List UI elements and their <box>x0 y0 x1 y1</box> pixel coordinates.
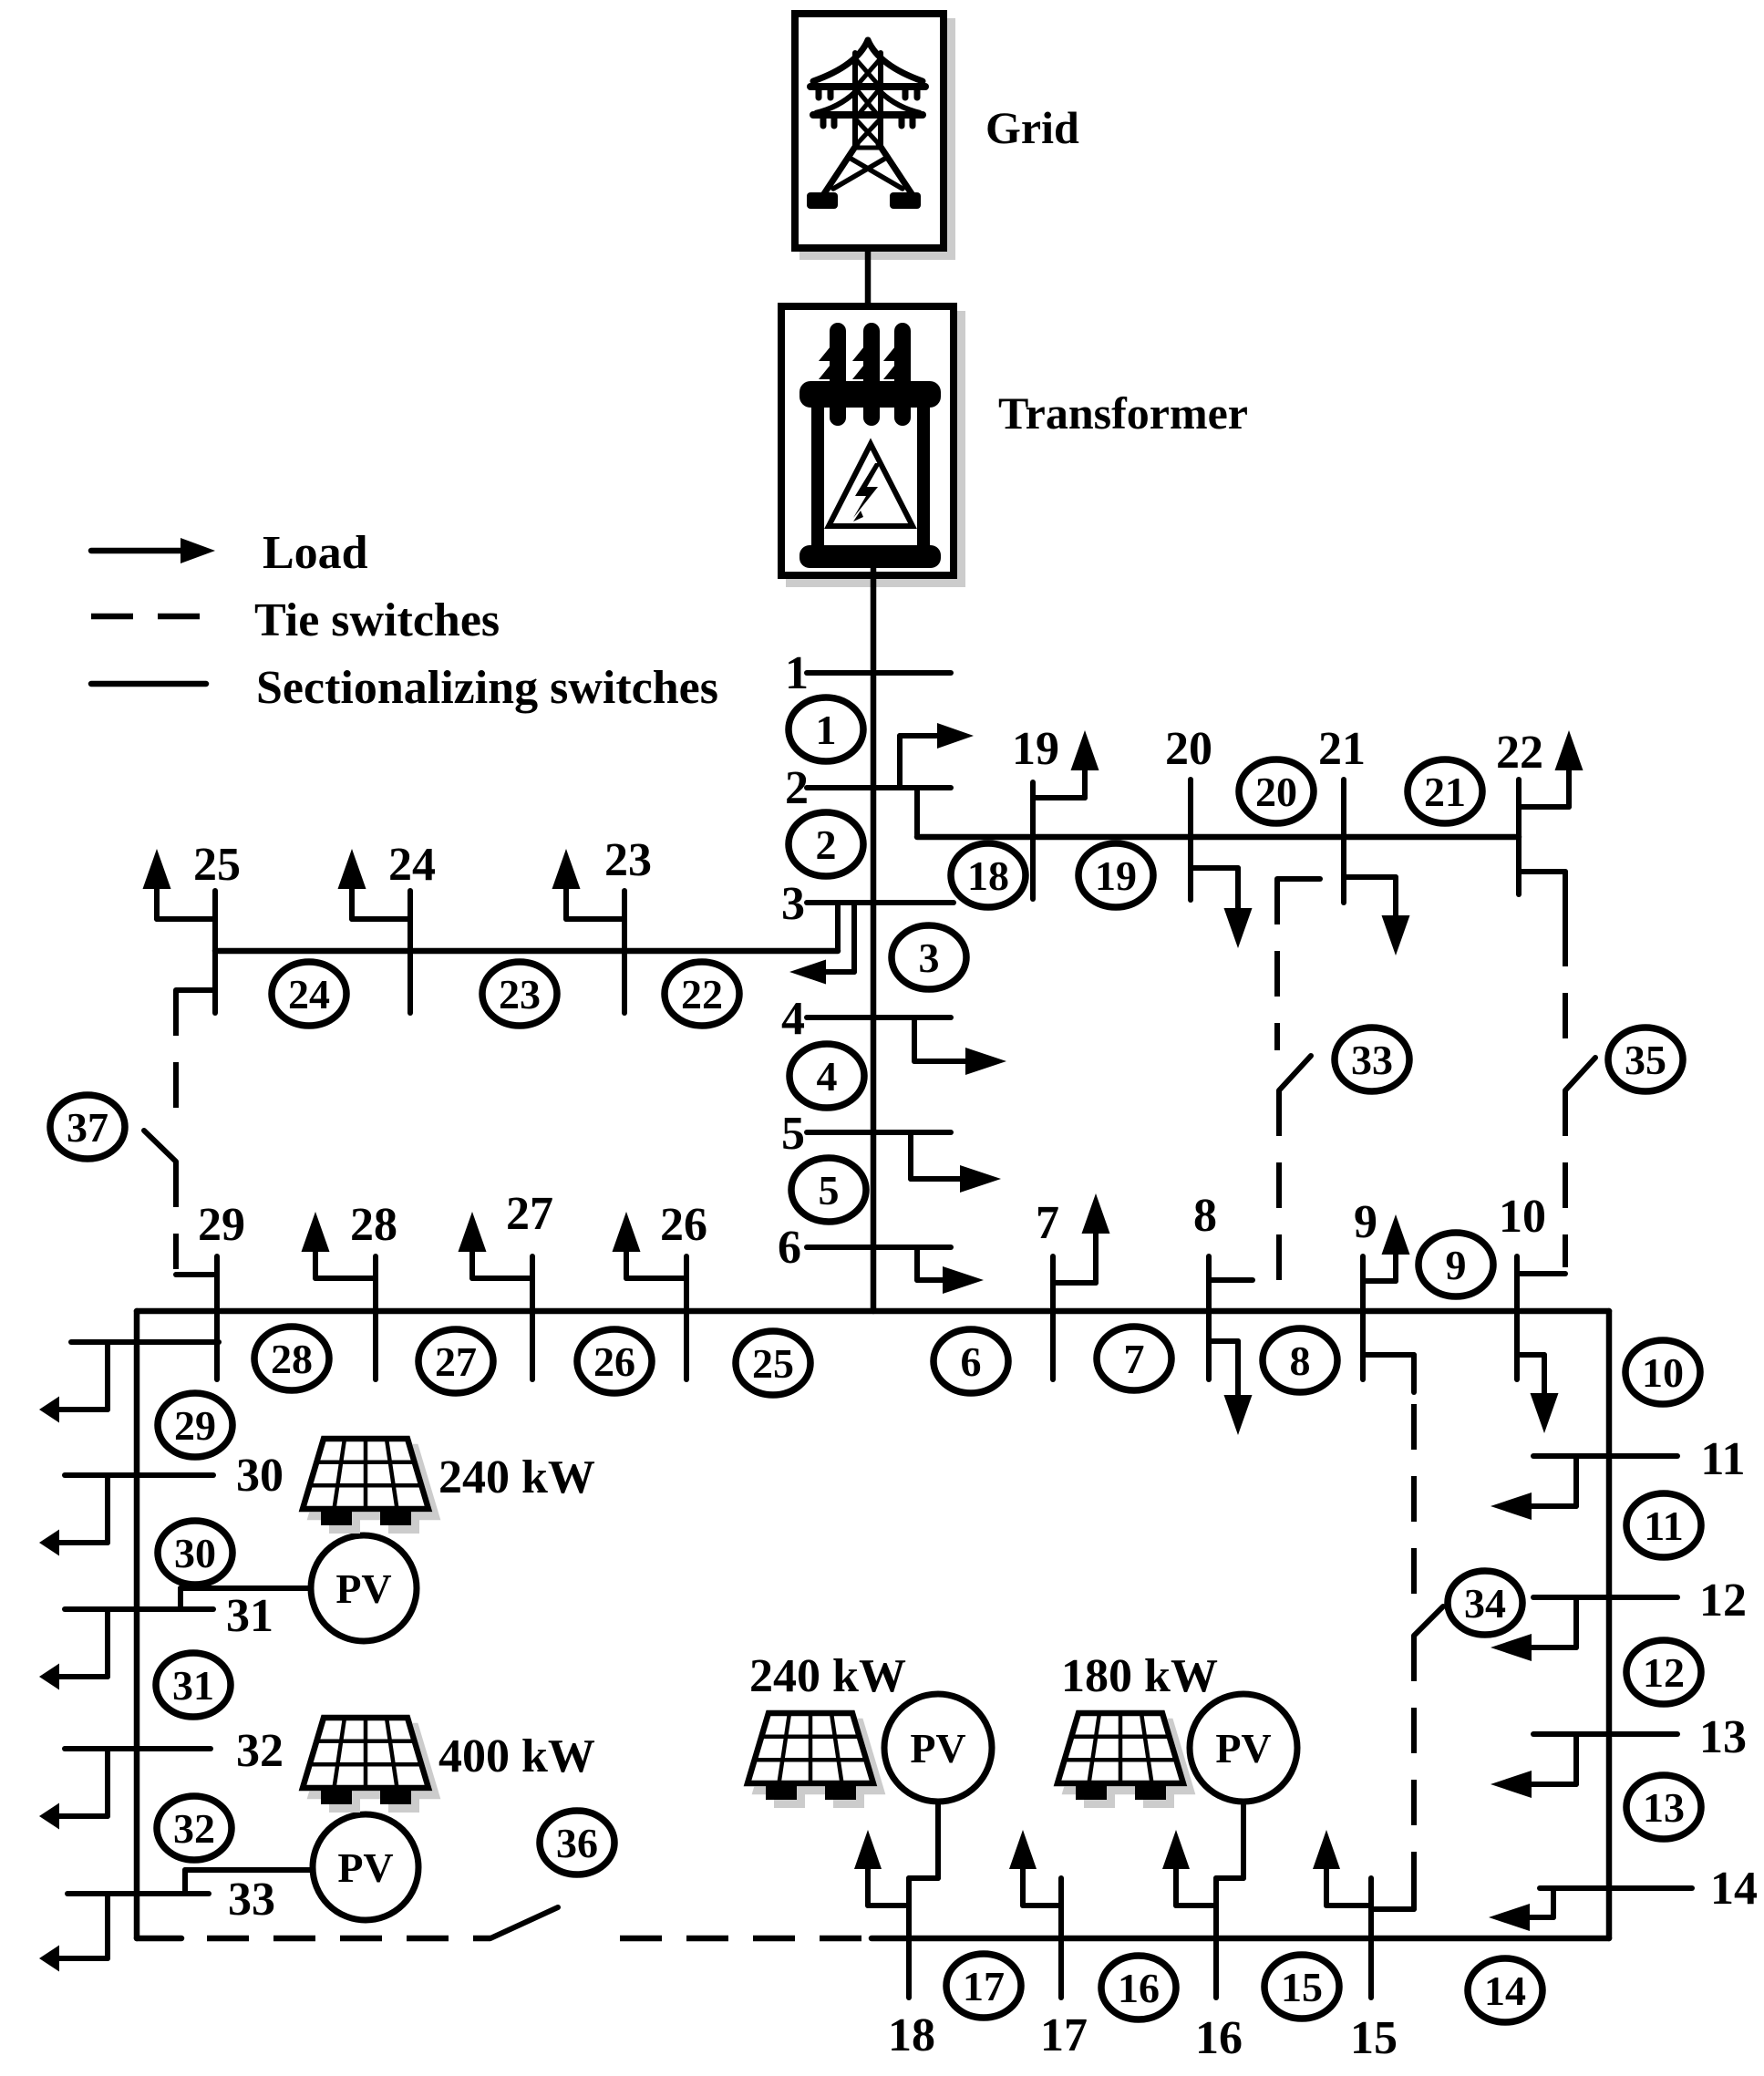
svg-text:17: 17 <box>1040 2009 1088 2061</box>
svg-text:33: 33 <box>1351 1037 1393 1083</box>
svg-text:4: 4 <box>817 1053 838 1100</box>
svg-text:23: 23 <box>499 971 541 1017</box>
svg-text:22: 22 <box>681 971 723 1017</box>
svg-text:24: 24 <box>388 839 436 891</box>
svg-text:8: 8 <box>1290 1338 1311 1384</box>
svg-text:400 kW: 400 kW <box>438 1730 595 1782</box>
svg-text:9: 9 <box>1446 1242 1467 1288</box>
svg-text:34: 34 <box>1464 1580 1506 1627</box>
svg-text:5: 5 <box>781 1108 805 1160</box>
svg-text:36: 36 <box>556 1820 598 1866</box>
svg-text:24: 24 <box>288 971 330 1017</box>
svg-text:3: 3 <box>781 878 805 930</box>
svg-text:13: 13 <box>1643 1784 1685 1831</box>
svg-text:2: 2 <box>785 762 809 814</box>
svg-text:8: 8 <box>1193 1190 1217 1242</box>
svg-text:PV: PV <box>910 1725 965 1771</box>
svg-text:26: 26 <box>593 1338 635 1385</box>
svg-text:10: 10 <box>1642 1349 1684 1396</box>
svg-text:22: 22 <box>1496 727 1543 779</box>
svg-text:19: 19 <box>1012 723 1059 775</box>
svg-text:28: 28 <box>350 1199 397 1251</box>
svg-text:35: 35 <box>1625 1037 1666 1083</box>
svg-text:30: 30 <box>174 1530 216 1576</box>
svg-text:29: 29 <box>174 1402 216 1449</box>
svg-text:27: 27 <box>506 1188 553 1240</box>
svg-text:1: 1 <box>785 647 809 699</box>
svg-text:PV: PV <box>1215 1725 1271 1771</box>
svg-text:25: 25 <box>193 839 241 891</box>
svg-text:20: 20 <box>1165 723 1212 775</box>
svg-text:Grid: Grid <box>985 102 1079 153</box>
svg-text:19: 19 <box>1095 852 1137 899</box>
svg-text:25: 25 <box>752 1340 794 1387</box>
svg-text:7: 7 <box>1036 1197 1059 1249</box>
svg-text:16: 16 <box>1118 1965 1160 2011</box>
svg-text:13: 13 <box>1699 1711 1747 1763</box>
svg-text:Load: Load <box>263 527 368 579</box>
svg-text:5: 5 <box>819 1167 840 1214</box>
svg-text:21: 21 <box>1424 769 1466 815</box>
svg-text:16: 16 <box>1195 2012 1243 2064</box>
svg-text:Tie switches: Tie switches <box>254 594 500 646</box>
svg-text:32: 32 <box>173 1805 215 1852</box>
svg-text:31: 31 <box>226 1590 273 1642</box>
svg-text:PV: PV <box>337 1844 393 1891</box>
svg-text:4: 4 <box>781 993 805 1045</box>
svg-text:23: 23 <box>604 834 652 886</box>
svg-text:7: 7 <box>1124 1336 1145 1382</box>
svg-text:37: 37 <box>67 1104 108 1151</box>
svg-text:14: 14 <box>1484 1968 1526 2014</box>
svg-text:11: 11 <box>1700 1433 1745 1485</box>
svg-text:6: 6 <box>778 1222 801 1274</box>
svg-text:29: 29 <box>198 1199 245 1251</box>
svg-text:PV: PV <box>335 1565 391 1612</box>
svg-text:2: 2 <box>816 821 837 868</box>
svg-text:10: 10 <box>1499 1191 1546 1243</box>
svg-text:Sectionalizing switches: Sectionalizing switches <box>256 662 718 714</box>
svg-text:26: 26 <box>660 1199 707 1251</box>
svg-text:15: 15 <box>1281 1964 1323 2010</box>
svg-text:27: 27 <box>435 1338 477 1385</box>
svg-text:33: 33 <box>228 1874 275 1926</box>
svg-text:180 kW: 180 kW <box>1061 1650 1218 1702</box>
svg-text:17: 17 <box>963 1963 1005 2009</box>
svg-text:32: 32 <box>236 1725 284 1777</box>
svg-text:3: 3 <box>919 935 940 981</box>
svg-text:Transformer: Transformer <box>998 387 1248 439</box>
svg-text:20: 20 <box>1255 769 1297 815</box>
svg-text:30: 30 <box>236 1450 284 1502</box>
svg-text:240 kW: 240 kW <box>749 1650 906 1702</box>
svg-text:28: 28 <box>271 1336 313 1382</box>
svg-text:18: 18 <box>888 2009 935 2061</box>
svg-text:9: 9 <box>1354 1196 1377 1248</box>
svg-text:12: 12 <box>1643 1649 1685 1696</box>
svg-text:240 kW: 240 kW <box>438 1451 595 1503</box>
svg-text:11: 11 <box>1644 1503 1683 1549</box>
svg-text:6: 6 <box>961 1338 982 1385</box>
svg-text:31: 31 <box>172 1662 214 1709</box>
svg-text:1: 1 <box>816 707 837 753</box>
svg-text:14: 14 <box>1710 1863 1758 1915</box>
svg-text:15: 15 <box>1350 2012 1398 2064</box>
svg-text:21: 21 <box>1318 723 1366 775</box>
svg-text:18: 18 <box>967 852 1009 899</box>
svg-text:12: 12 <box>1699 1575 1747 1627</box>
